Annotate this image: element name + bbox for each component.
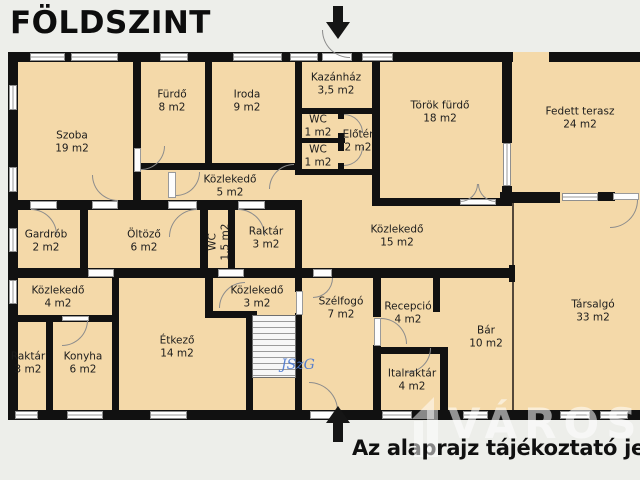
room-label-kozlekedo-15: Közlekedő15 m2 — [371, 224, 424, 249]
window — [233, 53, 282, 61]
floor-plan-page: { "title": "FÖLDSZINT", "footer_note": "… — [0, 0, 640, 480]
entrance-arrow-bottom-icon — [326, 406, 350, 423]
door-opening — [374, 318, 381, 346]
room-label-szelfogo: Szélfogó7 m2 — [319, 296, 364, 321]
wall — [433, 278, 440, 312]
wall — [205, 278, 213, 318]
room-label-raktar-1: Raktár3 m2 — [249, 226, 283, 251]
window — [9, 85, 17, 110]
wall — [133, 62, 141, 210]
window — [362, 53, 393, 61]
brand-logo-icon — [427, 410, 438, 457]
window — [503, 143, 511, 186]
signature-watermark: JSzG — [281, 357, 315, 373]
room-label-iroda: Iroda9 m2 — [234, 89, 261, 114]
door-opening — [238, 201, 265, 209]
brand-watermark: VÁROSI — [448, 399, 640, 448]
page-title: FÖLDSZINT — [10, 5, 211, 41]
wall — [80, 210, 88, 268]
window — [9, 280, 17, 304]
room-label-recepcio: Recepció4 m2 — [384, 301, 431, 326]
wall — [502, 52, 512, 143]
room-label-bar: Bár10 m2 — [469, 325, 503, 350]
wall — [440, 347, 448, 410]
room-label-fedett-terasz: Fedett terasz24 m2 — [546, 106, 615, 131]
door-opening — [168, 201, 197, 209]
window — [562, 193, 598, 201]
wall — [502, 186, 512, 198]
room-label-etkezo: Étkező14 m2 — [160, 335, 195, 360]
entrance-arrow-bottom-icon — [333, 422, 343, 442]
room-label-kozlekedo-4: Közlekedő4 m2 — [32, 285, 85, 310]
room-label-oltozo: Öltöző6 m2 — [127, 229, 161, 254]
entrance-arrow-top-icon — [326, 22, 350, 39]
door-opening — [613, 193, 639, 200]
room-label-szoba: Szoba19 m2 — [55, 130, 89, 155]
window — [382, 411, 412, 419]
wall — [295, 62, 302, 173]
door-opening — [134, 148, 141, 172]
wall — [205, 62, 212, 167]
room-label-wc3: WC1,5 m2 — [207, 224, 232, 261]
door-opening — [168, 172, 176, 198]
wall — [295, 200, 302, 292]
room-label-wc2: WC1 m2 — [305, 144, 332, 169]
door-opening — [296, 291, 303, 315]
wall — [549, 52, 640, 62]
room-label-gardrob: Gardrób2 m2 — [25, 229, 68, 254]
window — [290, 53, 318, 61]
window — [15, 411, 38, 419]
room-label-furdo: Fürdő8 m2 — [157, 89, 186, 114]
brand-logo-icon — [414, 421, 423, 457]
window — [71, 53, 118, 61]
room-label-kazanhaz: Kazánház3,5 m2 — [311, 72, 361, 97]
door-opening — [313, 269, 332, 277]
room-label-italraktar: Italraktár4 m2 — [388, 368, 436, 393]
window — [150, 411, 187, 419]
room-label-eloter: Előtér2 m2 — [343, 129, 374, 154]
door-opening — [88, 269, 114, 277]
window — [30, 53, 65, 61]
window — [9, 167, 17, 192]
room-label-kozlekedo-3: Közlekedő3 m2 — [231, 285, 284, 310]
window — [160, 53, 188, 61]
wall — [8, 268, 512, 278]
door-opening — [92, 201, 118, 209]
window — [67, 411, 103, 419]
wall — [112, 278, 119, 410]
partition-line — [512, 203, 514, 410]
room-label-konyha: Konyha6 m2 — [64, 351, 103, 376]
wall — [373, 345, 381, 410]
door-opening — [30, 201, 57, 209]
wall — [46, 322, 53, 410]
wall — [509, 265, 515, 282]
window — [9, 228, 17, 252]
room-label-torok-furdo: Török fürdő18 m2 — [411, 100, 470, 125]
wall — [373, 278, 381, 317]
door-opening — [218, 269, 244, 277]
room-label-wc1: WC1 m2 — [305, 114, 332, 139]
room-label-raktar-2: Raktár3 m2 — [11, 351, 45, 376]
room-label-tarsalgo: Társalgó33 m2 — [571, 299, 614, 324]
room-label-kozlekedo-5: Közlekedő5 m2 — [204, 174, 257, 199]
